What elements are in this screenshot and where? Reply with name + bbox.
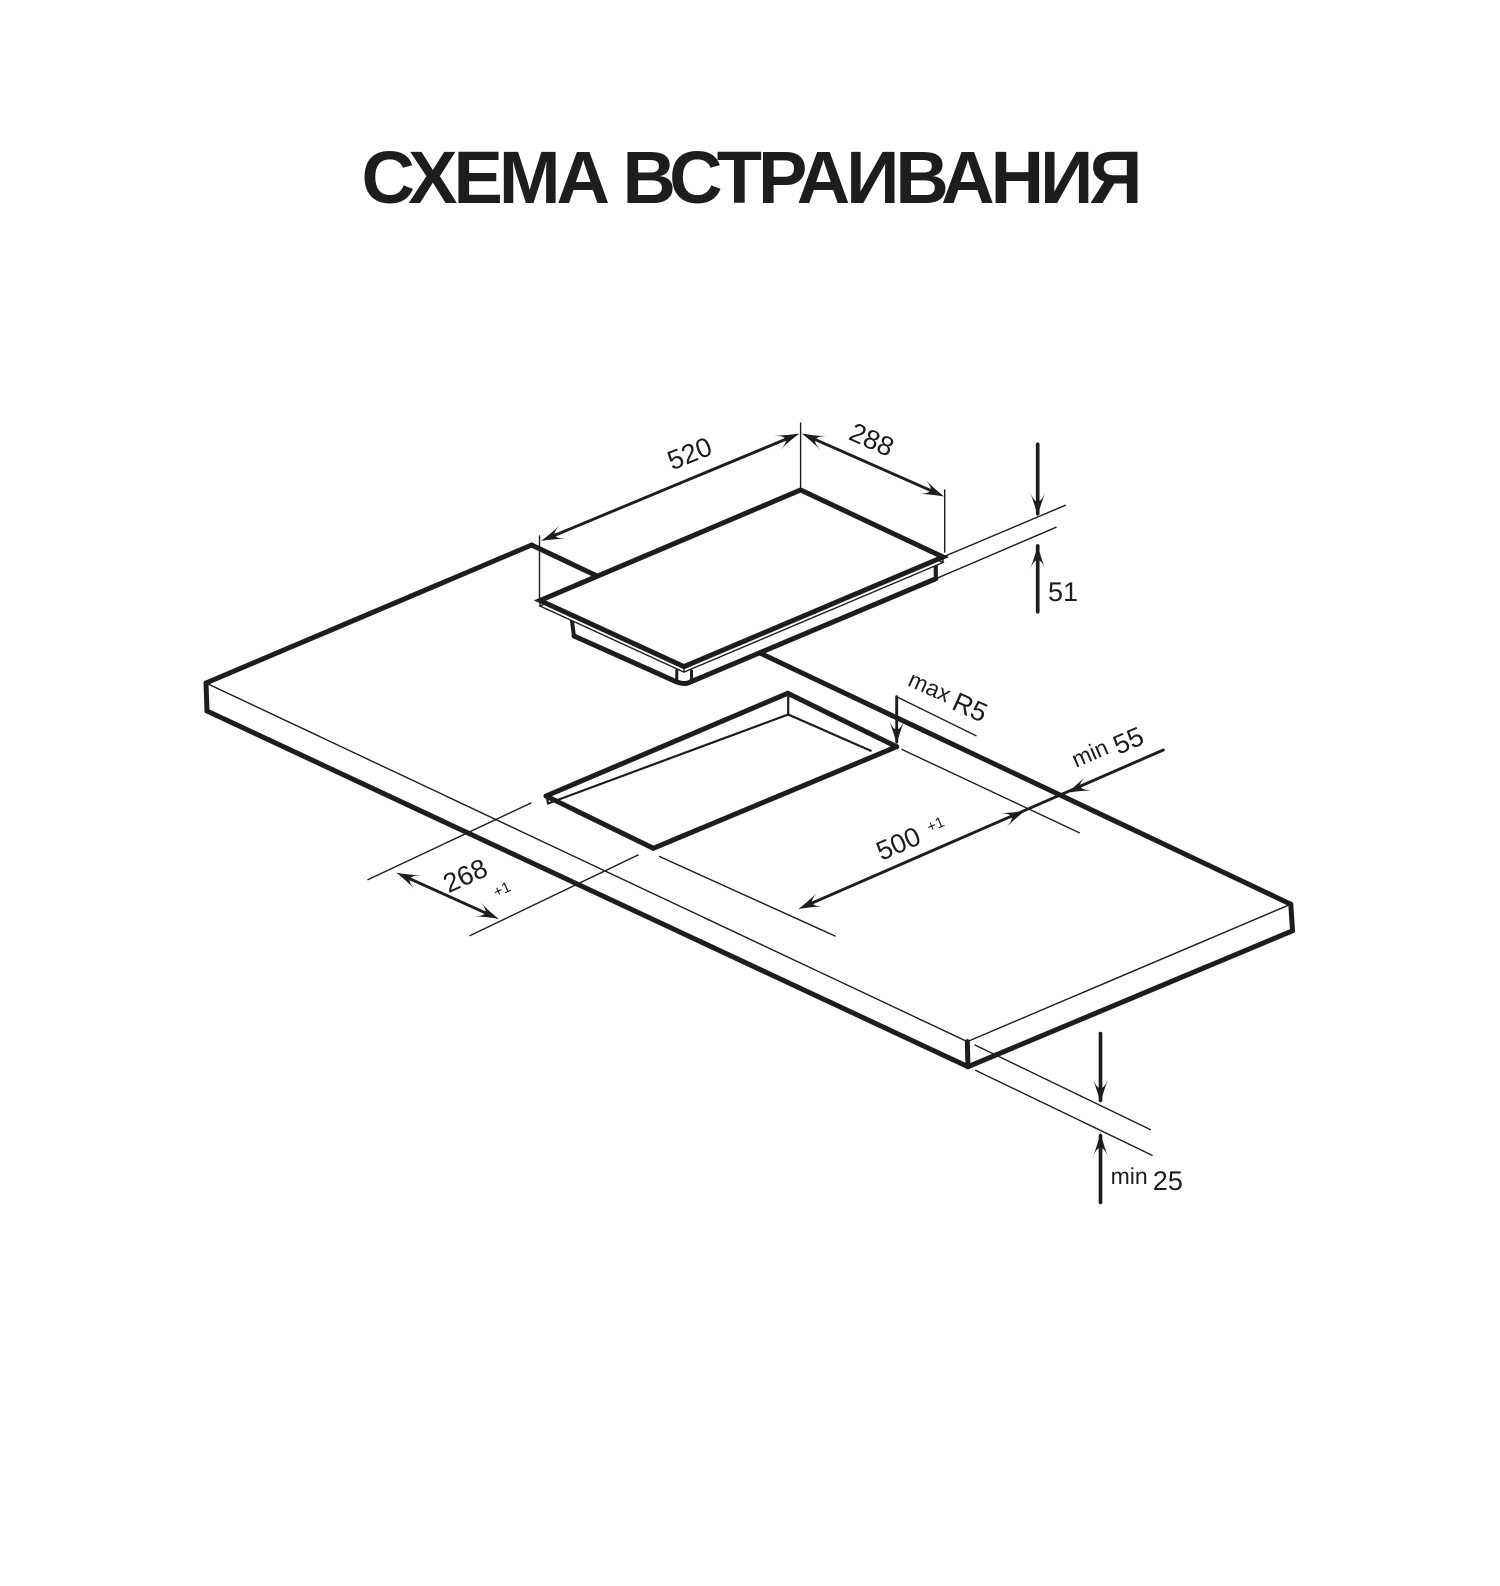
svg-text:max: max (905, 666, 956, 708)
svg-text:min: min (1111, 1163, 1148, 1189)
svg-text:520: 520 (663, 431, 716, 476)
svg-text:25: 25 (1153, 1166, 1183, 1196)
svg-text:+1: +1 (491, 879, 514, 902)
svg-text:55: 55 (1109, 721, 1149, 760)
svg-text:51: 51 (1048, 577, 1078, 607)
svg-text:R5: R5 (948, 687, 992, 728)
svg-text:268: 268 (439, 853, 492, 899)
svg-text:min: min (1068, 734, 1112, 773)
